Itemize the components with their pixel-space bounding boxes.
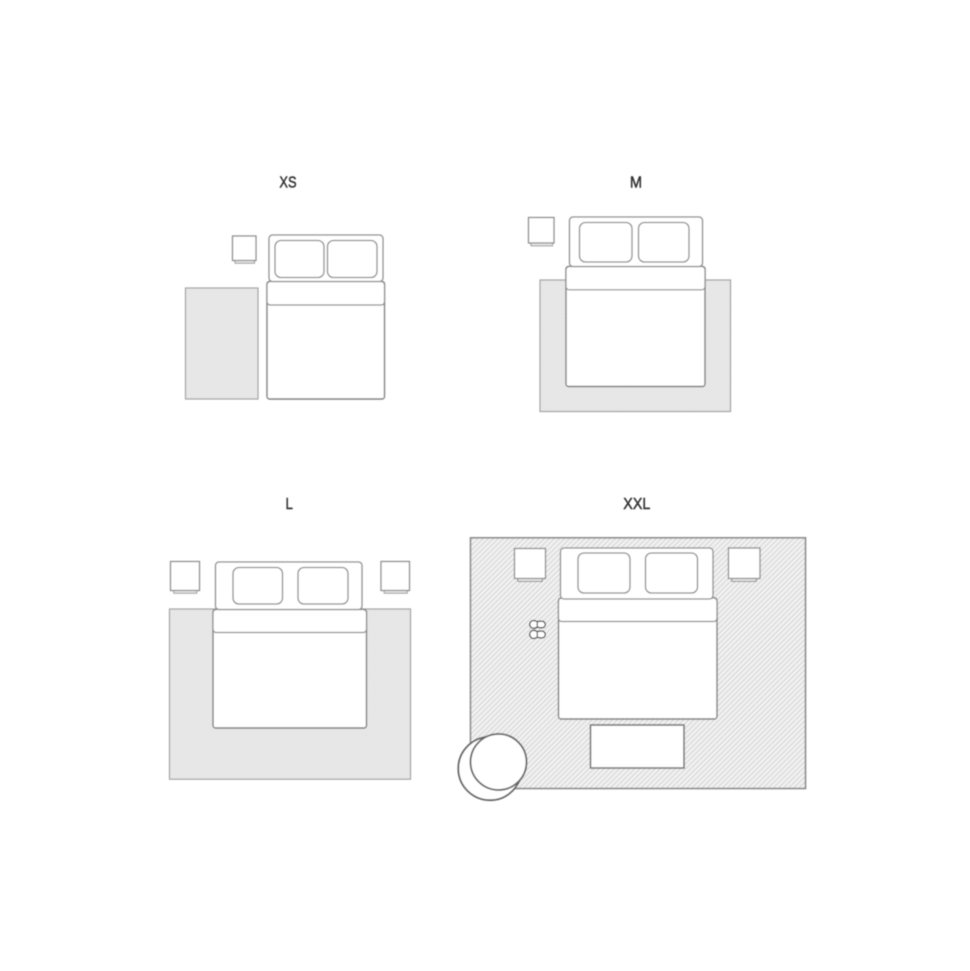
svg-text:XS: XS: [279, 175, 296, 192]
svg-text:M: M: [630, 175, 642, 192]
svg-text:XXL: XXL: [623, 496, 650, 513]
svg-text:L: L: [286, 496, 293, 513]
